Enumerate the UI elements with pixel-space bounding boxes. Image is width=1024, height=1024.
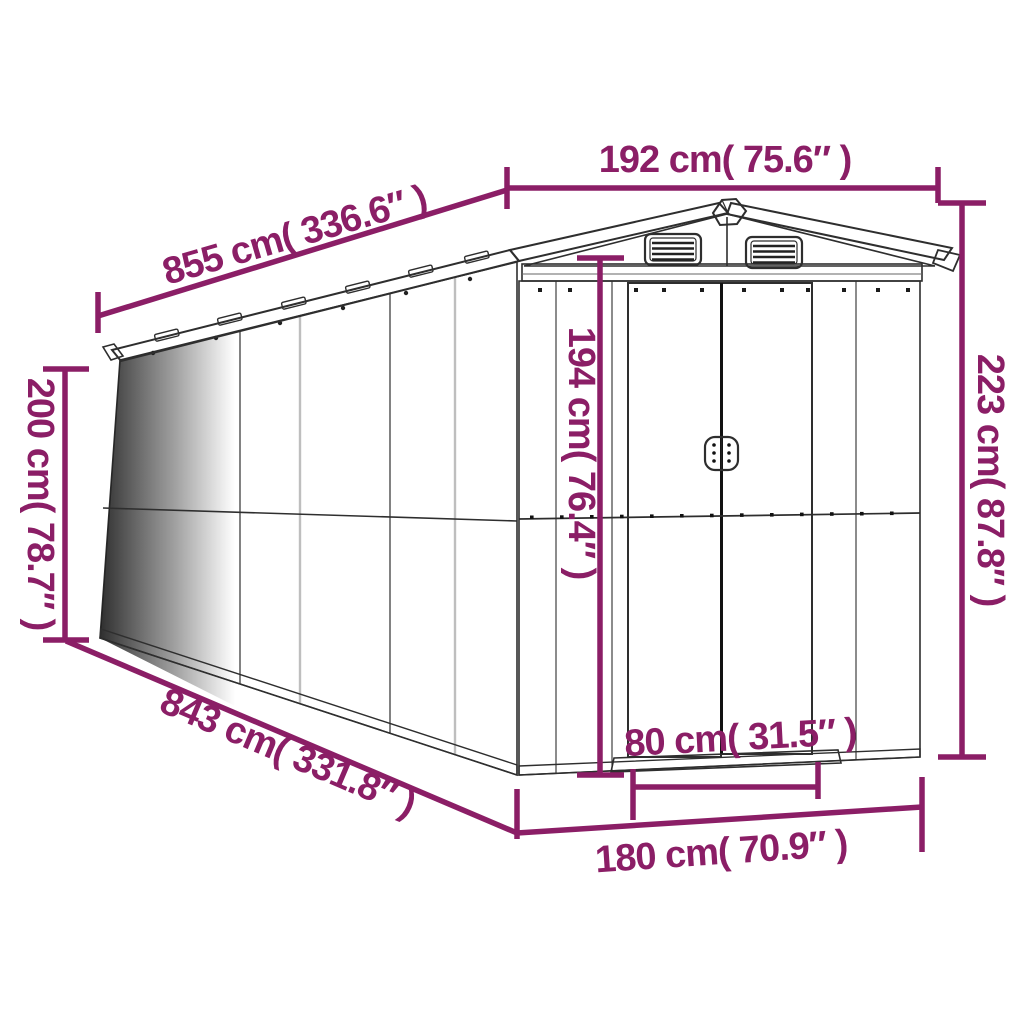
dim-front-width: 192 cm( 75.6″ ) [507, 139, 938, 209]
dim-front-width-label: 192 cm( 75.6″ ) [599, 139, 851, 181]
dim-overall-height-label: 223 cm( 87.8″ ) [969, 354, 1011, 606]
product-image: 192 cm( 75.6″ ) 855 cm( 336.6″ ) 200 cm(… [0, 0, 1024, 1024]
front-bolt-row [538, 288, 910, 292]
door-handle [705, 437, 738, 470]
dim-overall-height: 223 cm( 87.8″ ) [938, 203, 1011, 757]
side-wall-shadow [100, 332, 235, 706]
shed-illustration [100, 199, 960, 775]
dim-side-height-label: 200 cm( 78.7″ ) [19, 378, 61, 630]
dim-roof-length-label: 855 cm( 336.6″ ) [158, 177, 432, 293]
dim-roof-length: 855 cm( 336.6″ ) [98, 177, 507, 333]
dim-door-width-label: 80 cm( 31.5″ ) [623, 711, 857, 765]
dim-front-base-width: 180 cm( 70.9″ ) [517, 777, 922, 881]
dim-base-length: 843 cm( 331.8″ ) [66, 641, 517, 833]
door-left [628, 283, 721, 757]
dim-side-height: 200 cm( 78.7″ ) [19, 369, 89, 640]
gable-vent-left [645, 234, 701, 265]
double-doors [628, 283, 812, 757]
roof-end-cap-right [933, 250, 960, 271]
dim-front-base-width-label: 180 cm( 70.9″ ) [594, 823, 849, 882]
door-right [721, 283, 812, 754]
dim-base-length-label: 843 cm( 331.8″ ) [154, 680, 421, 825]
shed-dimension-diagram: 192 cm( 75.6″ ) 855 cm( 336.6″ ) 200 cm(… [0, 0, 1024, 1024]
dim-door-height-label: 194 cm( 76.4″ ) [560, 327, 602, 579]
dim-door-height: 194 cm( 76.4″ ) [560, 258, 624, 775]
front-gable [510, 199, 960, 281]
